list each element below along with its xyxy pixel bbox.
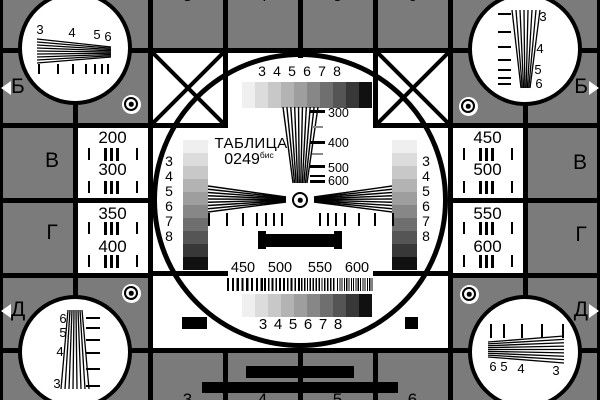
corner-label: 3	[36, 23, 43, 36]
grayscale-step	[183, 140, 208, 153]
grayscale-step	[183, 192, 208, 205]
top-scale-label: 4	[273, 64, 281, 78]
grayscale-step	[392, 244, 417, 257]
row-letter-right-d: Д	[574, 299, 588, 320]
target-dot	[298, 198, 303, 203]
bottom-bar-upper	[246, 366, 354, 378]
grayscale-step	[333, 82, 346, 108]
bottom-scale-label: 7	[319, 317, 327, 332]
panel-number-400: 400	[98, 238, 126, 255]
panel-number-350: 350	[98, 205, 126, 222]
left-scale-label: 8	[165, 229, 173, 243]
grayscale-step	[242, 82, 255, 108]
right-scale-label: 5	[422, 184, 430, 198]
grayscale-strip-left	[183, 140, 208, 270]
corner-label: 3	[53, 377, 60, 390]
bottom-scale-label: 6	[304, 317, 312, 332]
column-number-top: 4	[258, 0, 267, 4]
left-arrow-icon	[1, 81, 11, 95]
bottom-bar-lower	[202, 382, 398, 393]
corner-wedge-top-left	[34, 36, 114, 66]
corner-label: 4	[517, 362, 524, 375]
target-dot	[129, 102, 134, 107]
left-scale-label: 5	[165, 184, 173, 198]
grayscale-step	[392, 218, 417, 231]
grayscale-strip-right	[392, 140, 417, 270]
grayscale-step	[255, 82, 268, 108]
corner-label: 4	[68, 26, 75, 39]
card-number-superscript: бис	[260, 150, 274, 160]
corner-label: 4	[536, 42, 543, 55]
row-letter-right-v: В	[573, 152, 587, 173]
grayscale-step	[307, 294, 320, 317]
row-letter-left-b: Б	[11, 76, 25, 97]
grayscale-step	[183, 231, 208, 244]
freq-label-500: 500	[268, 261, 292, 276]
column-number-bottom: 5	[333, 391, 342, 400]
right-scale-label: 6	[422, 199, 430, 213]
top-scale-label: 6	[303, 64, 311, 78]
right-scale-label: 7	[422, 214, 430, 228]
wedge-label-300: 300	[328, 107, 349, 120]
target-bottom-left	[122, 284, 141, 303]
panel-number-500: 500	[473, 161, 501, 178]
black-rect-left	[182, 317, 207, 329]
right-scale-label: 8	[422, 229, 430, 243]
grayscale-step	[392, 257, 417, 270]
grayscale-step	[392, 153, 417, 166]
bottom-scale-label: 5	[289, 317, 297, 332]
center-black-bar-cap	[258, 231, 266, 249]
column-number-top: 3	[183, 0, 192, 4]
freq-label-550: 550	[308, 261, 332, 276]
column-number-bottom: 6	[408, 391, 417, 400]
bottom-scale-label: 4	[274, 317, 282, 332]
grayscale-step	[242, 294, 255, 317]
grating-500	[264, 278, 300, 291]
target-bottom-right	[460, 285, 479, 304]
row-letter-left-g: Г	[46, 222, 57, 243]
grayscale-step	[183, 166, 208, 179]
right-scale-label: 4	[422, 169, 430, 183]
grayscale-step	[359, 294, 372, 317]
freq-label-600: 600	[345, 261, 369, 276]
panel-number-200: 200	[98, 129, 126, 146]
column-number-top: 5	[333, 0, 342, 4]
row-letter-left-v: В	[45, 150, 59, 171]
corner-wedge-bottom-right	[486, 332, 566, 366]
corner-label: 5	[534, 63, 541, 76]
grayscale-step	[183, 218, 208, 231]
grayscale-step	[255, 294, 268, 317]
panel-number-300: 300	[98, 161, 126, 178]
target-dot	[467, 292, 472, 297]
grating-550	[301, 278, 337, 291]
center-left-wedge	[206, 183, 290, 215]
right-arrow-icon	[589, 304, 599, 318]
target-top-left	[122, 95, 141, 114]
target-dot	[129, 291, 134, 296]
grayscale-step	[183, 179, 208, 192]
column-number-top: 6	[408, 0, 417, 4]
grayscale-step	[392, 140, 417, 153]
panel-number-450: 450	[473, 129, 501, 146]
center-target	[290, 190, 311, 211]
grayscale-step	[346, 294, 359, 317]
right-arrow-icon	[589, 81, 599, 95]
grayscale-step	[183, 205, 208, 218]
wedge-label-500: 500	[328, 162, 349, 175]
grayscale-step	[294, 294, 307, 317]
top-scale-label: 7	[318, 64, 326, 78]
column-number-bottom: 3	[183, 391, 192, 400]
card-number-value: 0249	[224, 151, 260, 168]
panel-number-600: 600	[473, 238, 501, 255]
row-letter-right-g: Г	[575, 224, 586, 245]
center-black-bar-cap	[334, 231, 342, 249]
column-number-bottom: 4	[258, 391, 267, 400]
bottom-scale-label: 3	[259, 317, 267, 332]
grayscale-step	[281, 294, 294, 317]
grayscale-strip-bottom	[242, 294, 372, 317]
wedge-label-400: 400	[328, 137, 349, 150]
freq-label-450: 450	[231, 261, 255, 276]
right-scale-label: 3	[422, 154, 430, 168]
grayscale-step	[183, 244, 208, 257]
grayscale-step	[392, 166, 417, 179]
left-arrow-icon	[1, 304, 11, 318]
left-scale-label: 7	[165, 214, 173, 228]
grayscale-step	[320, 294, 333, 317]
target-top-right	[459, 97, 478, 116]
left-scale-label: 6	[165, 199, 173, 213]
grayscale-step	[268, 294, 281, 317]
tv-test-card: Б В Г Д Б В Г Д 3 4 5 6 3 4 5 6 200 300 …	[0, 0, 600, 400]
corner-label: 6	[489, 360, 496, 373]
top-scale-label: 5	[288, 64, 296, 78]
corner-label: 5	[59, 326, 66, 339]
top-scale-label: 3	[258, 64, 266, 78]
corner-label: 6	[104, 30, 111, 43]
corner-label: 3	[552, 364, 559, 377]
bottom-scale-label: 8	[334, 317, 342, 332]
grayscale-step	[183, 153, 208, 166]
grayscale-step	[359, 82, 372, 108]
corner-label: 5	[500, 360, 507, 373]
black-square-right	[405, 317, 418, 329]
left-scale-label: 3	[165, 154, 173, 168]
top-scale-label: 8	[333, 64, 341, 78]
corner-label: 6	[59, 312, 66, 325]
wedge-label-600: 600	[328, 175, 349, 188]
center-black-bar	[262, 234, 338, 248]
row-letter-left-d: Д	[11, 299, 25, 320]
target-dot	[466, 104, 471, 109]
center-right-wedge	[310, 183, 394, 215]
row-letter-right-b: Б	[574, 76, 588, 97]
grayscale-step	[392, 192, 417, 205]
corner-label: 4	[56, 345, 63, 358]
grayscale-step	[392, 179, 417, 192]
corner-label: 3	[539, 10, 546, 23]
grayscale-step	[392, 205, 417, 218]
panel-number-550: 550	[473, 205, 501, 222]
grayscale-step	[183, 257, 208, 270]
card-title: ТАБЛИЦА	[214, 136, 287, 151]
grating-600	[337, 278, 373, 291]
corner-label: 5	[93, 28, 100, 41]
corner-label: 6	[535, 77, 542, 90]
grating-450	[227, 278, 263, 291]
grayscale-step	[333, 294, 346, 317]
card-number: 0249бис	[224, 152, 273, 168]
frequency-gratings	[227, 278, 373, 291]
grayscale-step	[346, 82, 359, 108]
left-scale-label: 4	[165, 169, 173, 183]
grayscale-step	[392, 231, 417, 244]
